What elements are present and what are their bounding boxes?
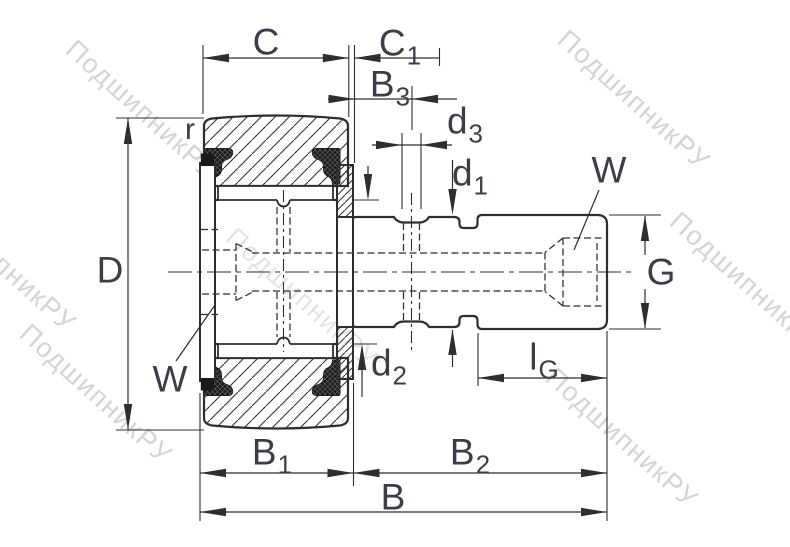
washer-clip-top [201,154,214,167]
dim-label-b3: B3 [370,66,410,103]
dim-label-r: r [185,115,195,145]
leader-w-right [574,190,599,250]
washer-clip-bottom [201,378,214,391]
dim-label-d3: d3 [447,103,483,140]
dim-label-lg: lG [529,339,558,376]
drawing-page: ПодшипникРУ ПодшипникРУ ПодшипникРУ Подш… [0,0,790,547]
dim-label-w-left: W [153,361,188,398]
dim-label-c1: C1 [379,25,421,62]
dim-label-w-right: W [592,152,627,189]
dim-label-d1: d1 [452,155,488,192]
dim-label-b: B [381,479,406,516]
dim-label-d2: d2 [371,345,407,382]
extension-lines [116,45,661,521]
dim-label-D: D [97,252,124,289]
dim-label-G: G [647,254,676,291]
dim-label-b1: B1 [252,434,292,471]
dim-label-b2: B2 [450,434,490,471]
dim-label-c: C [253,24,280,61]
